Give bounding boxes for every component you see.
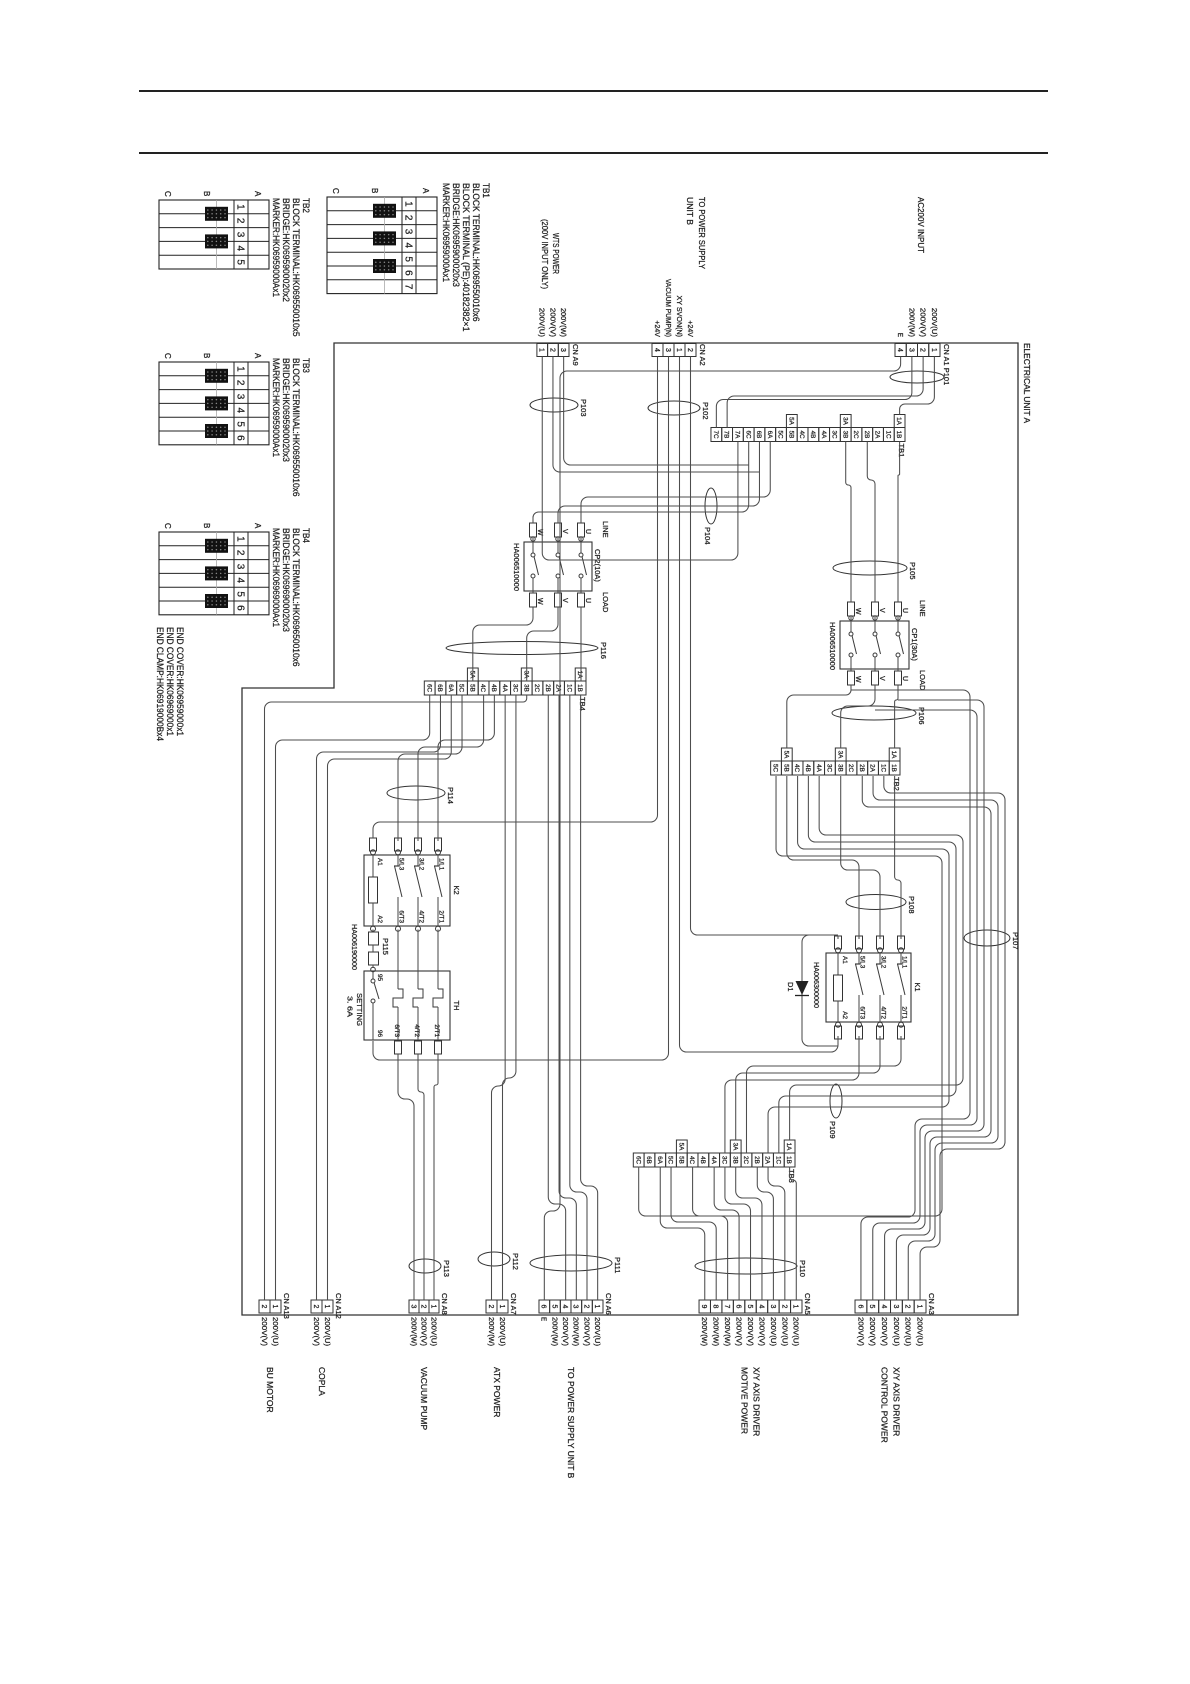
svg-text:2: 2	[487, 1305, 494, 1309]
svg-text:BRIDGE:HK0695900020x2: BRIDGE:HK0695900020x2	[281, 198, 291, 302]
svg-text:CN A12: CN A12	[334, 1293, 343, 1319]
svg-text:TB1: TB1	[481, 183, 491, 198]
svg-text:B: B	[202, 523, 211, 528]
svg-text:A: A	[253, 523, 262, 529]
svg-text:1: 1	[930, 348, 937, 352]
svg-text:SETTING: SETTING	[355, 993, 364, 1026]
svg-text:2: 2	[548, 348, 555, 352]
svg-text:200V(U): 200V(U)	[892, 1317, 901, 1347]
svg-text:1: 1	[593, 1305, 600, 1309]
svg-text:7C: 7C	[712, 430, 719, 439]
svg-text:ELECTRICAL UNIT A: ELECTRICAL UNIT A	[1022, 343, 1032, 423]
svg-text:3/L2: 3/L2	[880, 956, 887, 969]
svg-text:6C: 6C	[425, 684, 432, 693]
svg-text:2: 2	[780, 1305, 787, 1309]
svg-text:P104: P104	[703, 527, 712, 545]
svg-text:2: 2	[919, 348, 926, 352]
svg-text:6: 6	[235, 605, 246, 611]
svg-text:2A: 2A	[869, 764, 876, 773]
svg-text:3: 3	[235, 232, 246, 238]
svg-text:1: 1	[915, 1305, 922, 1309]
svg-text:4: 4	[235, 246, 246, 252]
svg-text:U: U	[584, 598, 591, 603]
svg-text:B: B	[370, 188, 379, 193]
svg-text:200V(V): 200V(V)	[419, 1317, 428, 1347]
svg-text:200V(U): 200V(U)	[792, 1317, 801, 1347]
svg-text:1B: 1B	[785, 1156, 792, 1164]
svg-text:2: 2	[403, 215, 414, 221]
svg-text:200V(U): 200V(U)	[593, 1317, 602, 1347]
svg-text:200V(V): 200V(V)	[868, 1317, 877, 1347]
svg-text:200V(V): 200V(V)	[561, 1317, 570, 1347]
svg-text:5/L3: 5/L3	[859, 956, 866, 969]
svg-text:2: 2	[312, 1305, 319, 1309]
svg-text:6: 6	[734, 1305, 741, 1309]
svg-text:P110: P110	[798, 1260, 807, 1277]
svg-text:X/Y AXIS DRIVER: X/Y AXIS DRIVER	[892, 1367, 902, 1436]
svg-text:MARKER:HK06959000Ax1: MARKER:HK06959000Ax1	[271, 358, 281, 457]
svg-text:5B: 5B	[787, 431, 794, 439]
svg-text:5: 5	[746, 1305, 753, 1309]
svg-text:BLOCK TERMINAL:HK069550010x6: BLOCK TERMINAL:HK069550010x6	[471, 183, 481, 322]
svg-text:W: W	[854, 676, 861, 683]
svg-text:6/T3: 6/T3	[398, 910, 405, 923]
svg-text:4A: 4A	[815, 764, 822, 773]
svg-text:3: 3	[235, 394, 246, 400]
svg-text:XY SVON(N): XY SVON(N)	[675, 296, 684, 338]
svg-text:5: 5	[235, 591, 246, 597]
svg-text:C: C	[163, 523, 172, 529]
svg-text:200V(V): 200V(V)	[757, 1317, 766, 1347]
svg-text:6A: 6A	[766, 431, 773, 440]
svg-text:5B: 5B	[782, 764, 789, 772]
svg-text:AC200V INPUT: AC200V INPUT	[916, 197, 926, 253]
svg-text:5: 5	[403, 256, 414, 262]
svg-text:MARKER:HK06959000Ax1: MARKER:HK06959000Ax1	[271, 198, 281, 297]
svg-text:200V(U): 200V(U)	[904, 1317, 913, 1347]
svg-text:P109: P109	[828, 1121, 837, 1139]
svg-text:4: 4	[561, 1305, 568, 1309]
svg-text:5: 5	[868, 1305, 875, 1309]
svg-text:6A: 6A	[656, 1156, 663, 1165]
svg-text:VACUUM PUMP: VACUUM PUMP	[419, 1367, 429, 1430]
svg-text:6B: 6B	[436, 684, 443, 692]
svg-text:4A: 4A	[820, 431, 827, 440]
svg-text:U: U	[584, 529, 591, 534]
svg-text:3: 3	[559, 348, 566, 352]
svg-text:1: 1	[792, 1305, 799, 1309]
svg-text:BU MOTOR: BU MOTOR	[265, 1367, 275, 1413]
svg-text:P112: P112	[511, 1253, 520, 1270]
svg-text:5B: 5B	[677, 1156, 684, 1164]
svg-text:BLOCK TERMINAL:HK069550010x5: BLOCK TERMINAL:HK069550010x5	[291, 198, 301, 337]
svg-text:4: 4	[757, 1305, 764, 1309]
svg-text:V: V	[561, 598, 568, 603]
svg-text:A: A	[253, 353, 262, 359]
svg-text:2: 2	[260, 1305, 267, 1309]
svg-text:4: 4	[653, 348, 660, 352]
svg-text:2: 2	[235, 218, 246, 224]
svg-text:CN A7: CN A7	[509, 1293, 518, 1315]
svg-text:4C: 4C	[793, 764, 800, 773]
svg-text:5A: 5A	[468, 671, 475, 680]
svg-text:3C: 3C	[512, 684, 519, 693]
svg-text:2: 2	[582, 1305, 589, 1309]
svg-text:W: W	[854, 608, 861, 615]
svg-text:TH: TH	[452, 1001, 461, 1011]
svg-text:P108: P108	[907, 896, 916, 914]
svg-text:1C: 1C	[884, 430, 891, 439]
svg-text:BLOCK TERMINAL (PE):40182382×1: BLOCK TERMINAL (PE):40182382×1	[461, 183, 471, 332]
svg-text:MOTIVE POWER: MOTIVE POWER	[740, 1367, 750, 1434]
svg-text:W: W	[536, 598, 543, 605]
svg-text:1B: 1B	[890, 764, 897, 772]
svg-text:9: 9	[700, 1305, 707, 1309]
svg-text:2B: 2B	[858, 764, 865, 772]
svg-text:TB1: TB1	[897, 444, 906, 458]
svg-text:LINE: LINE	[918, 600, 927, 617]
svg-text:CN A8: CN A8	[440, 1293, 449, 1315]
svg-text:3: 3	[907, 348, 914, 352]
svg-text:2B: 2B	[863, 431, 870, 439]
svg-text:TO POWER SUPPLY UNIT B: TO POWER SUPPLY UNIT B	[566, 1367, 576, 1479]
svg-text:6: 6	[540, 1305, 547, 1309]
svg-text:X/Y AXIS DRIVER: X/Y AXIS DRIVER	[752, 1367, 762, 1436]
svg-text:2C: 2C	[852, 430, 859, 439]
svg-text:K1: K1	[913, 983, 922, 992]
svg-text:CN A2: CN A2	[698, 344, 707, 366]
svg-text:4A: 4A	[710, 1156, 717, 1165]
svg-text:P105: P105	[908, 562, 917, 580]
svg-text:C: C	[163, 191, 172, 197]
svg-text:5A: 5A	[787, 417, 794, 426]
svg-text:200V(U): 200V(U)	[780, 1317, 789, 1347]
svg-text:4: 4	[235, 408, 246, 414]
svg-text:200V(W): 200V(W)	[572, 1317, 581, 1347]
svg-text:5A: 5A	[677, 1143, 684, 1152]
svg-text:6/T3: 6/T3	[859, 1006, 866, 1019]
svg-text:200V(V): 200V(V)	[734, 1317, 743, 1347]
svg-text:B: B	[202, 191, 211, 196]
svg-text:6: 6	[235, 435, 246, 441]
svg-text:E: E	[896, 333, 905, 337]
svg-text:6B: 6B	[645, 1156, 652, 1164]
svg-text:HA006510000: HA006510000	[512, 543, 521, 591]
svg-text:3. 6A: 3. 6A	[346, 996, 355, 1017]
svg-text:P115: P115	[381, 938, 390, 955]
svg-text:U: U	[901, 608, 908, 613]
svg-text:5: 5	[235, 259, 246, 265]
svg-text:D1: D1	[786, 982, 795, 992]
svg-text:4/T2: 4/T2	[880, 1006, 887, 1019]
svg-text:6C: 6C	[634, 1156, 641, 1165]
svg-text:K2: K2	[452, 886, 461, 895]
svg-text:V: V	[878, 608, 885, 613]
svg-text:3: 3	[572, 1305, 579, 1309]
svg-text:3: 3	[664, 348, 671, 352]
svg-text:3C: 3C	[831, 430, 838, 439]
svg-text:3B: 3B	[522, 684, 529, 692]
svg-text:WTS POWER: WTS POWER	[551, 233, 561, 274]
svg-text:3: 3	[892, 1305, 899, 1309]
svg-text:1/L1: 1/L1	[438, 858, 445, 871]
svg-text:P116: P116	[599, 642, 608, 659]
svg-text:MARKER:HK06969000Ax1: MARKER:HK06969000Ax1	[271, 528, 281, 627]
svg-text:1A: 1A	[785, 1143, 792, 1152]
svg-text:1: 1	[429, 1305, 436, 1309]
svg-text:2B: 2B	[753, 1156, 760, 1164]
svg-text:1: 1	[675, 348, 682, 352]
svg-text:200V(W): 200V(W)	[712, 1317, 721, 1347]
svg-text:5C: 5C	[777, 430, 784, 439]
svg-text:ATX POWER: ATX POWER	[492, 1367, 502, 1417]
svg-text:7: 7	[403, 284, 414, 290]
svg-text:CN A1 P101: CN A1 P101	[942, 344, 951, 385]
svg-text:6C: 6C	[744, 430, 751, 439]
svg-text:CN A5: CN A5	[803, 1293, 812, 1315]
svg-text:2A: 2A	[874, 431, 881, 440]
svg-text:200V(V): 200V(V)	[746, 1317, 755, 1347]
svg-text:200V(W): 200V(W)	[559, 308, 568, 338]
svg-text:3A: 3A	[731, 1143, 738, 1152]
svg-text:4: 4	[235, 578, 246, 584]
svg-text:A: A	[253, 191, 262, 197]
svg-text:4B: 4B	[699, 1156, 706, 1164]
svg-text:200V(U): 200V(U)	[915, 1317, 924, 1347]
svg-text:200V(W): 200V(W)	[487, 1317, 496, 1347]
svg-text:1: 1	[235, 536, 246, 542]
svg-text:5C: 5C	[458, 684, 465, 693]
svg-text:A1: A1	[376, 858, 383, 866]
svg-text:1A: 1A	[890, 751, 897, 760]
svg-text:TB4: TB4	[578, 697, 587, 711]
svg-text:TB2: TB2	[301, 198, 311, 213]
svg-text:6: 6	[403, 270, 414, 276]
svg-text:3A: 3A	[836, 751, 843, 760]
svg-text:200V(W): 200V(W)	[409, 1317, 418, 1347]
svg-text:CONTROL POWER: CONTROL POWER	[880, 1367, 890, 1443]
svg-text:END COVER:HK06969000x1: END COVER:HK06969000x1	[165, 627, 175, 736]
svg-text:5A: 5A	[782, 751, 789, 760]
svg-text:3C: 3C	[721, 1156, 728, 1165]
svg-text:2/T1: 2/T1	[438, 910, 445, 923]
svg-text:5/L3: 5/L3	[398, 858, 405, 871]
svg-text:200V(W): 200V(W)	[700, 1317, 709, 1347]
svg-text:200V(U): 200V(U)	[271, 1317, 280, 1347]
svg-text:COPLA: COPLA	[317, 1367, 327, 1396]
svg-text:6: 6	[856, 1305, 863, 1309]
svg-text:200V(U): 200V(U)	[498, 1317, 507, 1347]
svg-text:BLOCK TERMINAL:HK069650010x6: BLOCK TERMINAL:HK069650010x6	[291, 528, 301, 667]
svg-text:200V(U): 200V(U)	[429, 1317, 438, 1347]
svg-text:5C: 5C	[772, 764, 779, 773]
svg-text:6/T3: 6/T3	[393, 1024, 400, 1037]
svg-text:3A: 3A	[841, 417, 848, 426]
svg-text:5B: 5B	[468, 684, 475, 692]
svg-text:BRIDGE:HK0695900020x3: BRIDGE:HK0695900020x3	[281, 358, 291, 462]
svg-text:1: 1	[498, 1305, 505, 1309]
svg-text:4B: 4B	[804, 764, 811, 772]
svg-text:200V(V): 200V(V)	[548, 308, 557, 338]
svg-text:4B: 4B	[490, 684, 497, 692]
svg-text:LOAD: LOAD	[601, 592, 610, 613]
svg-text:2: 2	[419, 1305, 426, 1309]
svg-text:TO POWER SUPPLY: TO POWER SUPPLY	[697, 197, 707, 269]
svg-text:3B: 3B	[836, 764, 843, 772]
svg-text:CN A6: CN A6	[604, 1293, 613, 1315]
svg-text:1C: 1C	[774, 1156, 781, 1165]
svg-text:3: 3	[409, 1305, 416, 1309]
svg-text:CN A9: CN A9	[571, 344, 580, 366]
svg-text:HA006300000: HA006300000	[812, 962, 821, 1008]
svg-text:3B: 3B	[841, 431, 848, 439]
svg-text:P102: P102	[701, 402, 710, 420]
svg-text:2A: 2A	[555, 684, 562, 693]
svg-text:2C: 2C	[847, 764, 854, 773]
svg-text:V: V	[561, 529, 568, 534]
svg-text:BRIDGE:HK0695900020x3: BRIDGE:HK0695900020x3	[451, 183, 461, 287]
svg-text:2C: 2C	[533, 684, 540, 693]
svg-text:P107: P107	[1011, 932, 1020, 950]
svg-text:200V(V): 200V(V)	[919, 308, 928, 338]
svg-text:7A: 7A	[734, 431, 741, 440]
svg-text:A2: A2	[376, 915, 383, 923]
svg-text:200V(U): 200V(U)	[769, 1317, 778, 1347]
svg-text:200V(V): 200V(V)	[260, 1317, 269, 1347]
svg-text:1A: 1A	[895, 417, 902, 426]
svg-text:CN A13: CN A13	[282, 1293, 291, 1319]
svg-text:BLOCK TERMINAL:HK069550010x6: BLOCK TERMINAL:HK069550010x6	[291, 358, 301, 497]
svg-text:3B: 3B	[731, 1156, 738, 1164]
svg-text:CP2(10A): CP2(10A)	[593, 549, 602, 582]
svg-text:1C: 1C	[565, 684, 572, 693]
svg-text:C: C	[163, 353, 172, 359]
svg-text:200V(W): 200V(W)	[550, 1317, 559, 1347]
svg-text:4: 4	[896, 348, 903, 352]
svg-text:5: 5	[550, 1305, 557, 1309]
svg-text:6A: 6A	[447, 684, 454, 693]
svg-text:200V(W): 200V(W)	[907, 308, 916, 338]
svg-text:LINE: LINE	[601, 521, 610, 538]
svg-text:4: 4	[403, 243, 414, 249]
svg-text:HA006190000: HA006190000	[350, 924, 359, 970]
svg-text:END CLAMP:HK06919000Bx4: END CLAMP:HK06919000Bx4	[155, 627, 165, 741]
svg-text:E: E	[540, 1317, 549, 1321]
svg-text:2: 2	[235, 380, 246, 386]
svg-text:4A: 4A	[501, 684, 508, 693]
svg-text:CN A3: CN A3	[927, 1293, 936, 1315]
svg-text:200V(W): 200V(W)	[723, 1317, 732, 1347]
svg-text:4: 4	[880, 1305, 887, 1309]
svg-text:2: 2	[686, 348, 693, 352]
svg-text:1: 1	[538, 348, 545, 352]
svg-text:7: 7	[723, 1305, 730, 1309]
svg-text:4B: 4B	[809, 431, 816, 439]
svg-text:200V(V): 200V(V)	[312, 1317, 321, 1347]
svg-text:4C: 4C	[479, 684, 486, 693]
svg-text:200V(U): 200V(U)	[930, 308, 939, 338]
svg-text:1: 1	[235, 366, 246, 372]
svg-text:2/T1: 2/T1	[901, 1006, 908, 1019]
svg-text:1/L1: 1/L1	[901, 956, 908, 969]
svg-text:200V(U): 200V(U)	[323, 1317, 332, 1347]
svg-text:TB2: TB2	[892, 777, 901, 791]
svg-text:6B: 6B	[755, 431, 762, 439]
svg-text:96: 96	[376, 1030, 383, 1038]
svg-text:+24V: +24V	[653, 320, 662, 337]
svg-text:200V(V): 200V(V)	[880, 1317, 889, 1347]
svg-text:3C: 3C	[826, 764, 833, 773]
svg-text:200V(U): 200V(U)	[538, 308, 547, 338]
svg-text:200V(V): 200V(V)	[582, 1317, 591, 1347]
svg-text:2: 2	[235, 550, 246, 556]
svg-text:VACUUM PUMP(N): VACUUM PUMP(N)	[664, 279, 673, 338]
svg-text:2/T1: 2/T1	[433, 1024, 440, 1037]
svg-text:3: 3	[769, 1305, 776, 1309]
svg-text:TB3: TB3	[301, 358, 311, 373]
svg-text:3A: 3A	[522, 671, 529, 680]
svg-text:3/L2: 3/L2	[418, 858, 425, 871]
svg-text:BRIDGE:HK0696900020x3: BRIDGE:HK0696900020x3	[281, 528, 291, 632]
svg-text:1B: 1B	[895, 431, 902, 439]
svg-text:A1: A1	[841, 956, 848, 964]
svg-text:A: A	[421, 188, 430, 194]
svg-text:4C: 4C	[688, 1156, 695, 1165]
svg-text:U: U	[901, 676, 908, 681]
svg-text:C: C	[331, 188, 340, 194]
svg-text:P113: P113	[442, 1260, 451, 1277]
svg-text:2C: 2C	[742, 1156, 749, 1165]
svg-text:2: 2	[904, 1305, 911, 1309]
svg-text:1: 1	[403, 201, 414, 207]
svg-text:1B: 1B	[576, 684, 583, 692]
svg-text:1A: 1A	[576, 671, 583, 680]
svg-text:A2: A2	[841, 1011, 848, 1019]
svg-text:HA006510000: HA006510000	[828, 622, 837, 670]
svg-text:END COVER:HK06959000x1: END COVER:HK06959000x1	[175, 627, 185, 736]
svg-text:5C: 5C	[667, 1156, 674, 1165]
svg-text:P111: P111	[613, 1257, 622, 1273]
svg-text:95: 95	[376, 974, 383, 982]
svg-text:B: B	[202, 353, 211, 358]
svg-text:7B: 7B	[723, 431, 730, 439]
svg-text:200V(V): 200V(V)	[856, 1317, 865, 1347]
svg-text:TB4: TB4	[301, 528, 311, 543]
svg-text:8: 8	[712, 1305, 719, 1309]
svg-text:UNIT B: UNIT B	[685, 197, 695, 225]
svg-text:3: 3	[235, 564, 246, 570]
svg-text:V: V	[878, 676, 885, 681]
svg-text:4/T2: 4/T2	[413, 1024, 420, 1037]
svg-text:5: 5	[235, 421, 246, 427]
svg-text:4/T2: 4/T2	[418, 910, 425, 923]
svg-text:4C: 4C	[798, 430, 805, 439]
svg-text:MARKER:HK06959000Ax1: MARKER:HK06959000Ax1	[441, 183, 451, 282]
svg-text:1: 1	[235, 204, 246, 210]
svg-text:3: 3	[403, 229, 414, 235]
svg-text:P103: P103	[579, 399, 588, 417]
svg-text:CP1(30A): CP1(30A)	[910, 628, 919, 661]
svg-text:1: 1	[323, 1305, 330, 1309]
svg-text:P114: P114	[446, 787, 455, 804]
svg-text:LOAD: LOAD	[918, 670, 927, 691]
svg-text:1C: 1C	[879, 764, 886, 773]
svg-text:(200V INPUT ONLY): (200V INPUT ONLY)	[540, 219, 550, 289]
svg-text:+24V: +24V	[686, 320, 695, 337]
svg-text:1: 1	[271, 1305, 278, 1309]
svg-text:2B: 2B	[544, 684, 551, 692]
svg-text:2A: 2A	[764, 1156, 771, 1165]
